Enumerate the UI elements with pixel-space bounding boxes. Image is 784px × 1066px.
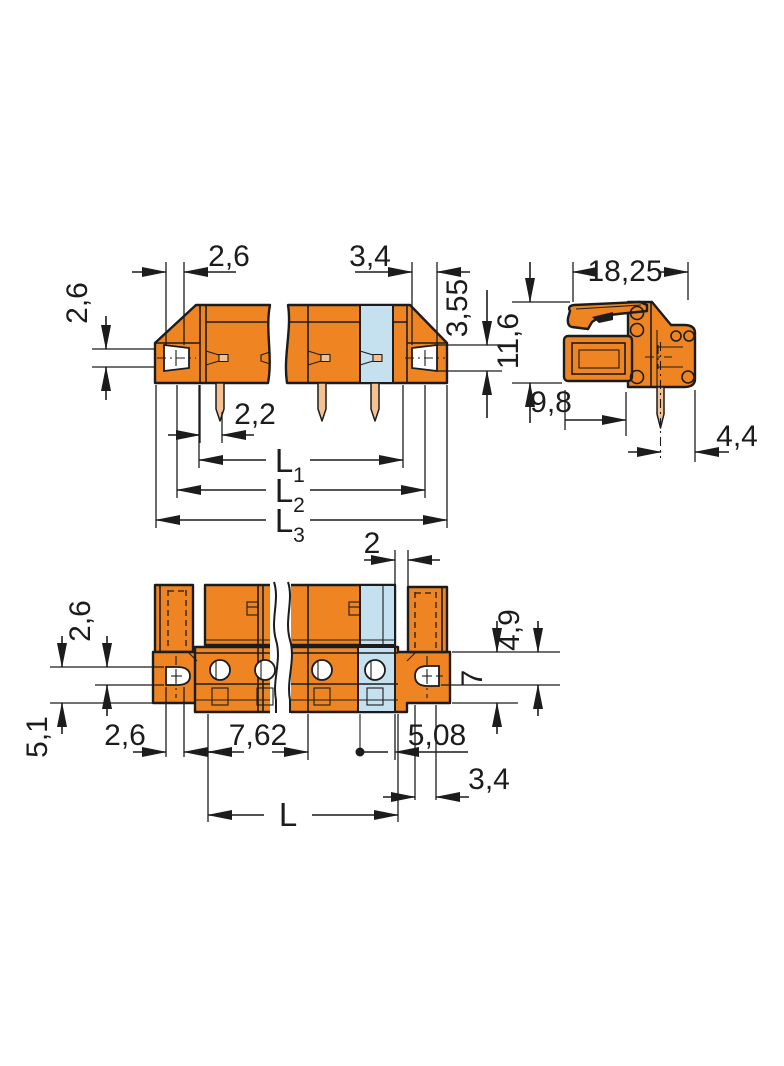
dim-label: 2,2 xyxy=(234,398,276,431)
solder-pin xyxy=(216,383,224,421)
dim-label: 3,4 xyxy=(349,240,391,273)
dim-label: 2,6 xyxy=(64,600,97,642)
side-body-left xyxy=(155,305,270,383)
dim-end-overall-width: 18,25 xyxy=(573,255,688,302)
dim-plan-flange-hole-height: 2,6 xyxy=(50,600,164,716)
dim-label: 7,62 xyxy=(229,719,287,752)
plan-view: 2 2,6 5,1 2,6 xyxy=(21,527,560,833)
dim-label: 2,6 xyxy=(208,240,250,273)
dim-side-length2: L 2 xyxy=(177,385,425,517)
contact-hole xyxy=(255,660,275,680)
dim-plan-end-gap: 2 xyxy=(364,527,440,587)
contact-hole xyxy=(210,660,230,680)
dim-label: 4,9 xyxy=(493,609,526,651)
technical-drawing-page: 2,6 3,4 2,6 3,55 xyxy=(0,0,784,1066)
contact-hole xyxy=(365,660,385,680)
dim-plan-last-pole-to-edge: 5,08 xyxy=(356,714,469,760)
dim-label: 2 xyxy=(364,527,381,560)
dim-label: 4,4 xyxy=(716,420,758,453)
dim-label: 2,6 xyxy=(61,282,94,324)
plan-coding-pole-upper xyxy=(360,585,395,645)
dim-label: 11,6 xyxy=(492,313,525,369)
dim-label: 9,8 xyxy=(530,386,572,419)
dim-label: L xyxy=(275,502,293,539)
contact-hole xyxy=(312,660,332,680)
dim-label: 5,1 xyxy=(21,716,54,758)
dim-label: L xyxy=(279,796,297,833)
dim-label-sub: 3 xyxy=(293,524,305,547)
solder-pin xyxy=(371,383,379,421)
dim-label: 5,08 xyxy=(408,719,466,752)
dim-label: 2,6 xyxy=(104,719,146,752)
dim-label: 3,4 xyxy=(468,763,510,796)
dim-label: 3,55 xyxy=(441,279,474,337)
dim-side-hole-height: 2,6 xyxy=(61,282,155,400)
side-coding-pole xyxy=(360,305,393,383)
dim-end-pin-to-edge: 4,4 xyxy=(628,390,758,462)
dim-label: 7 xyxy=(456,670,489,687)
plan-flange-right-upper xyxy=(408,587,447,652)
end-view: 18,25 11,6 9,8 4,4 xyxy=(492,255,758,462)
dim-label-sub: 2 xyxy=(293,494,305,517)
dim-plan-hole-offset: 4,9 xyxy=(441,609,560,716)
dim-end-pin-distance: 9,8 xyxy=(530,386,626,436)
dim-label-sub: 1 xyxy=(293,464,305,487)
side-view: 2,6 3,4 2,6 3,55 xyxy=(61,240,502,547)
end-body xyxy=(628,302,695,387)
solder-pin xyxy=(318,383,326,421)
dim-label: 18,25 xyxy=(587,255,662,288)
connector-dimensional-drawing: 2,6 3,4 2,6 3,55 xyxy=(0,0,784,1066)
